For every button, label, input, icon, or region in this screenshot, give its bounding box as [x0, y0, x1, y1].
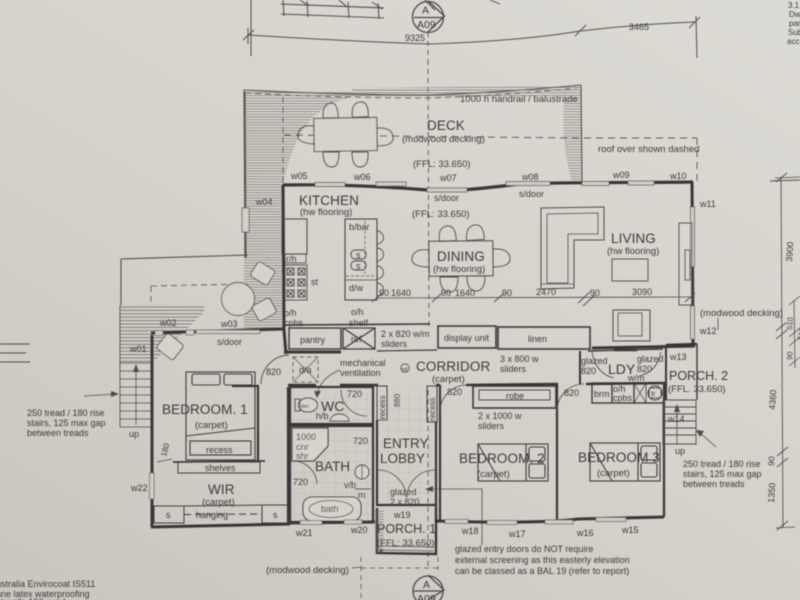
svg-text:between treads: between treads	[683, 479, 745, 489]
svg-text:v/b: v/b	[344, 480, 356, 490]
svg-text:w13: w13	[669, 352, 687, 362]
svg-text:w02: w02	[159, 318, 177, 328]
svg-text:w22: w22	[130, 483, 148, 493]
svg-text:4360: 4360	[767, 389, 778, 410]
svg-text:Dwe: Dwe	[789, 10, 800, 19]
svg-text:2 x 1000 w: 2 x 1000 w	[478, 411, 522, 421]
svg-text:LOBBY: LOBBY	[380, 451, 425, 466]
svg-text:(carpet): (carpet)	[195, 420, 228, 431]
svg-text:(FFL: 33.650): (FFL: 33.650)	[413, 159, 471, 170]
svg-text:1640: 1640	[391, 288, 411, 298]
svg-text:s: s	[166, 510, 171, 520]
svg-text:(hw flooring): (hw flooring)	[433, 264, 485, 275]
svg-text:510: 510	[785, 317, 795, 330]
svg-text:pantry: pantry	[300, 335, 326, 345]
svg-text:WIR: WIR	[208, 482, 235, 497]
svg-text:mechanical: mechanical	[340, 358, 386, 368]
svg-text:2 x 820: 2 x 820	[390, 497, 420, 507]
svg-text:w01: w01	[129, 344, 147, 354]
svg-text:1350: 1350	[766, 482, 777, 503]
svg-text:(carpet): (carpet)	[432, 374, 465, 385]
svg-text:(modwood decking): (modwood decking)	[266, 565, 349, 576]
svg-text:glazed: glazed	[637, 354, 664, 364]
svg-text:CORRIDOR: CORRIDOR	[416, 359, 490, 374]
svg-text:stairs, 125 max gap: stairs, 125 max gap	[27, 418, 106, 428]
svg-text:w09: w09	[612, 170, 630, 180]
svg-text:s/door: s/door	[434, 193, 459, 203]
svg-text:1640: 1640	[455, 288, 475, 298]
svg-text:250 tread / 180 rise: 250 tread / 180 rise	[27, 408, 105, 418]
svg-text:720: 720	[353, 436, 368, 446]
svg-text:ENTRY: ENTRY	[383, 436, 429, 451]
svg-text:sliders: sliders	[500, 364, 527, 374]
svg-text:820: 820	[581, 366, 596, 376]
svg-text:9325: 9325	[405, 33, 425, 43]
svg-text:LIVING: LIVING	[611, 231, 656, 246]
svg-text:(FFL. 33.650): (FFL. 33.650)	[668, 384, 726, 395]
svg-text:1000 h handrail / balustrade: 1000 h handrail / balustrade	[460, 94, 578, 105]
svg-text:90: 90	[590, 288, 600, 298]
svg-text:s/door: s/door	[519, 189, 544, 199]
svg-text:wc: wc	[300, 403, 310, 410]
svg-text:Sub: Sub	[788, 28, 800, 37]
svg-text:PORCH. 2: PORCH. 2	[669, 369, 728, 383]
svg-text:A09: A09	[417, 593, 436, 600]
svg-text:s: s	[356, 250, 361, 260]
svg-text:sliders: sliders	[381, 339, 408, 349]
svg-text:ventilation: ventilation	[340, 368, 381, 378]
svg-text:3090: 3090	[632, 287, 652, 297]
svg-text:3.1: 3.1	[788, 1, 800, 10]
svg-text:between treads: between treads	[27, 428, 89, 438]
svg-text:(carpet): (carpet)	[202, 497, 235, 508]
svg-text:(FFL: 33.650): (FFL: 33.650)	[377, 538, 435, 549]
svg-text:A: A	[422, 5, 429, 17]
svg-text:m: m	[358, 490, 366, 500]
svg-text:d/w: d/w	[349, 283, 364, 293]
svg-text:w15: w15	[621, 525, 639, 535]
svg-text:BEDROOM. 1: BEDROOM. 1	[162, 402, 248, 417]
svg-text:90: 90	[502, 288, 512, 298]
svg-text:st: st	[311, 277, 319, 287]
svg-text:w11: w11	[699, 199, 716, 209]
svg-text:w20: w20	[350, 525, 368, 535]
svg-text:hanging: hanging	[196, 510, 228, 520]
svg-text:bath: bath	[321, 504, 339, 514]
svg-text:2 x 820 w/m: 2 x 820 w/m	[381, 329, 430, 339]
svg-text:90: 90	[766, 456, 777, 466]
svg-text:up: up	[675, 446, 685, 456]
svg-text:s: s	[273, 510, 278, 520]
svg-text:w05: w05	[290, 171, 308, 181]
svg-text:w16: w16	[576, 528, 594, 538]
svg-text:acc: acc	[787, 37, 799, 46]
svg-text:cpbs: cpbs	[613, 393, 633, 403]
svg-text:w04: w04	[255, 197, 273, 207]
svg-text:w/m: w/m	[627, 373, 645, 383]
svg-text:3 x 800 w: 3 x 800 w	[500, 354, 539, 364]
svg-text:w21: w21	[295, 528, 313, 538]
svg-text:o/h: o/h	[284, 308, 297, 318]
svg-text:w10: w10	[669, 171, 687, 181]
svg-text:shelves: shelves	[205, 463, 236, 473]
svg-text:brm: brm	[594, 389, 610, 399]
svg-text:DINING: DINING	[437, 249, 485, 264]
svg-text:display unit: display unit	[444, 333, 490, 343]
svg-text:cpbs: cpbs	[284, 318, 304, 328]
svg-text:90: 90	[441, 288, 451, 298]
svg-text:w07: w07	[439, 173, 457, 183]
svg-text:3465: 3465	[629, 22, 649, 32]
svg-text:w06: w06	[353, 172, 371, 182]
svg-text:250 tread / 180 rise: 250 tread / 180 rise	[683, 459, 761, 469]
svg-text:w08: w08	[521, 172, 539, 182]
svg-text:w18: w18	[461, 526, 479, 536]
svg-text:w19: w19	[393, 510, 411, 520]
svg-text:820: 820	[266, 367, 281, 377]
svg-text:o/h: o/h	[351, 307, 364, 317]
svg-text:sd: sd	[402, 367, 408, 373]
svg-text:shelf: shelf	[349, 318, 369, 328]
svg-text:s/door: s/door	[217, 337, 242, 347]
svg-text:ustralia Envirocoat IS511: ustralia Envirocoat IS511	[0, 579, 95, 589]
svg-text:glazed entry doors do NOT requ: glazed entry doors do NOT require	[455, 544, 593, 554]
svg-text:BATH: BATH	[315, 459, 350, 474]
svg-text:A: A	[423, 579, 430, 591]
svg-text:(FFL: 33.650): (FFL: 33.650)	[412, 209, 470, 220]
svg-text:90: 90	[379, 288, 389, 298]
svg-text:w14: w14	[667, 414, 685, 424]
svg-text:820: 820	[564, 388, 579, 398]
svg-text:(hw flooring): (hw flooring)	[300, 207, 352, 218]
svg-text:(carpet): (carpet)	[597, 468, 630, 479]
svg-text:shr: shr	[296, 451, 309, 461]
svg-text:linen: linen	[528, 334, 547, 344]
svg-text:3900: 3900	[784, 241, 795, 262]
svg-text:720: 720	[293, 477, 308, 487]
svg-text:1000: 1000	[296, 432, 316, 442]
svg-text:s: s	[356, 261, 361, 271]
svg-text:sliders: sliders	[478, 421, 505, 431]
svg-text:w03: w03	[220, 319, 238, 329]
svg-text:90: 90	[785, 351, 795, 360]
svg-text:720: 720	[347, 389, 362, 399]
svg-text:w17: w17	[508, 529, 526, 539]
svg-text:par: par	[789, 19, 800, 28]
svg-text:510: 510	[796, 327, 800, 340]
svg-text:roof over shown dashed: roof over shown dashed	[598, 144, 699, 155]
svg-text:w12: w12	[699, 326, 717, 336]
svg-text:glazed: glazed	[390, 487, 417, 497]
svg-text:A09: A09	[417, 19, 436, 31]
svg-text:can be classed as a BAL 19 (re: can be classed as a BAL 19 (refer to rep…	[455, 566, 629, 576]
svg-text:h/b: h/b	[316, 411, 329, 421]
svg-text:recess: recess	[206, 445, 233, 455]
svg-text:r/h: r/h	[286, 254, 297, 264]
svg-text:ref: ref	[351, 334, 362, 344]
svg-text:robe: robe	[506, 391, 524, 401]
svg-text:2470: 2470	[536, 287, 556, 297]
svg-text:up: up	[129, 429, 139, 439]
svg-text:tr: tr	[651, 391, 656, 398]
svg-text:external screening as this eas: external screening as this easterly elev…	[455, 555, 630, 565]
svg-text:stairs, 125 max gap: stairs, 125 max gap	[683, 469, 762, 479]
svg-text:PORCH. 1: PORCH. 1	[377, 522, 436, 536]
svg-text:DECK: DECK	[427, 118, 465, 133]
svg-text:(modwood decking): (modwood decking)	[700, 308, 783, 319]
svg-text:(modwood decking): (modwood decking)	[402, 134, 485, 145]
svg-text:KITCHEN: KITCHEN	[299, 193, 359, 208]
svg-text:(hw flooring): (hw flooring)	[607, 246, 659, 257]
svg-text:b/bar: b/bar	[349, 222, 370, 232]
svg-text:d/a: d/a	[299, 365, 312, 375]
